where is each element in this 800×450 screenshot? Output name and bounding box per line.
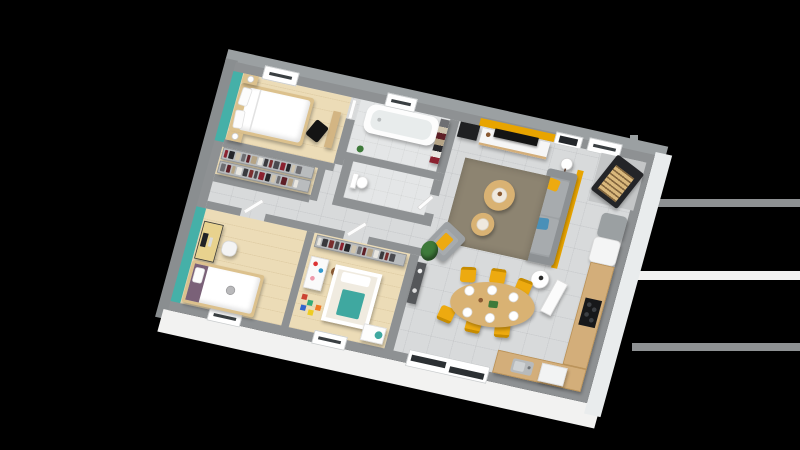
burner	[591, 307, 597, 313]
tray	[475, 217, 490, 232]
plate	[464, 285, 476, 296]
background-stripe	[632, 343, 800, 351]
entry-door-glass	[558, 136, 578, 147]
burner	[588, 317, 594, 323]
bottle	[538, 275, 544, 281]
keyboard	[208, 237, 213, 247]
burner	[584, 312, 590, 318]
plate	[486, 285, 498, 296]
toy	[310, 276, 316, 282]
toy	[313, 261, 319, 267]
plate	[508, 292, 520, 303]
crib-pillow	[340, 271, 371, 287]
bay-glass	[410, 355, 446, 369]
toy	[318, 268, 324, 274]
sink-basin	[513, 361, 526, 372]
dining-chair	[460, 267, 477, 283]
plate	[484, 312, 496, 323]
plate	[462, 307, 474, 318]
crib-blanket	[336, 289, 365, 320]
garment	[295, 166, 302, 174]
garment	[293, 180, 299, 188]
console-decor	[417, 268, 423, 274]
glass	[478, 298, 483, 303]
background-stripe	[624, 271, 800, 280]
plate	[508, 310, 520, 321]
console-decor	[412, 288, 418, 294]
faucet	[527, 366, 531, 370]
house-plan	[168, 62, 655, 403]
centerpiece	[488, 300, 498, 308]
floor-plan-render	[0, 0, 800, 450]
burner	[586, 302, 592, 308]
garment	[389, 254, 396, 262]
teal-bowl	[374, 331, 384, 340]
